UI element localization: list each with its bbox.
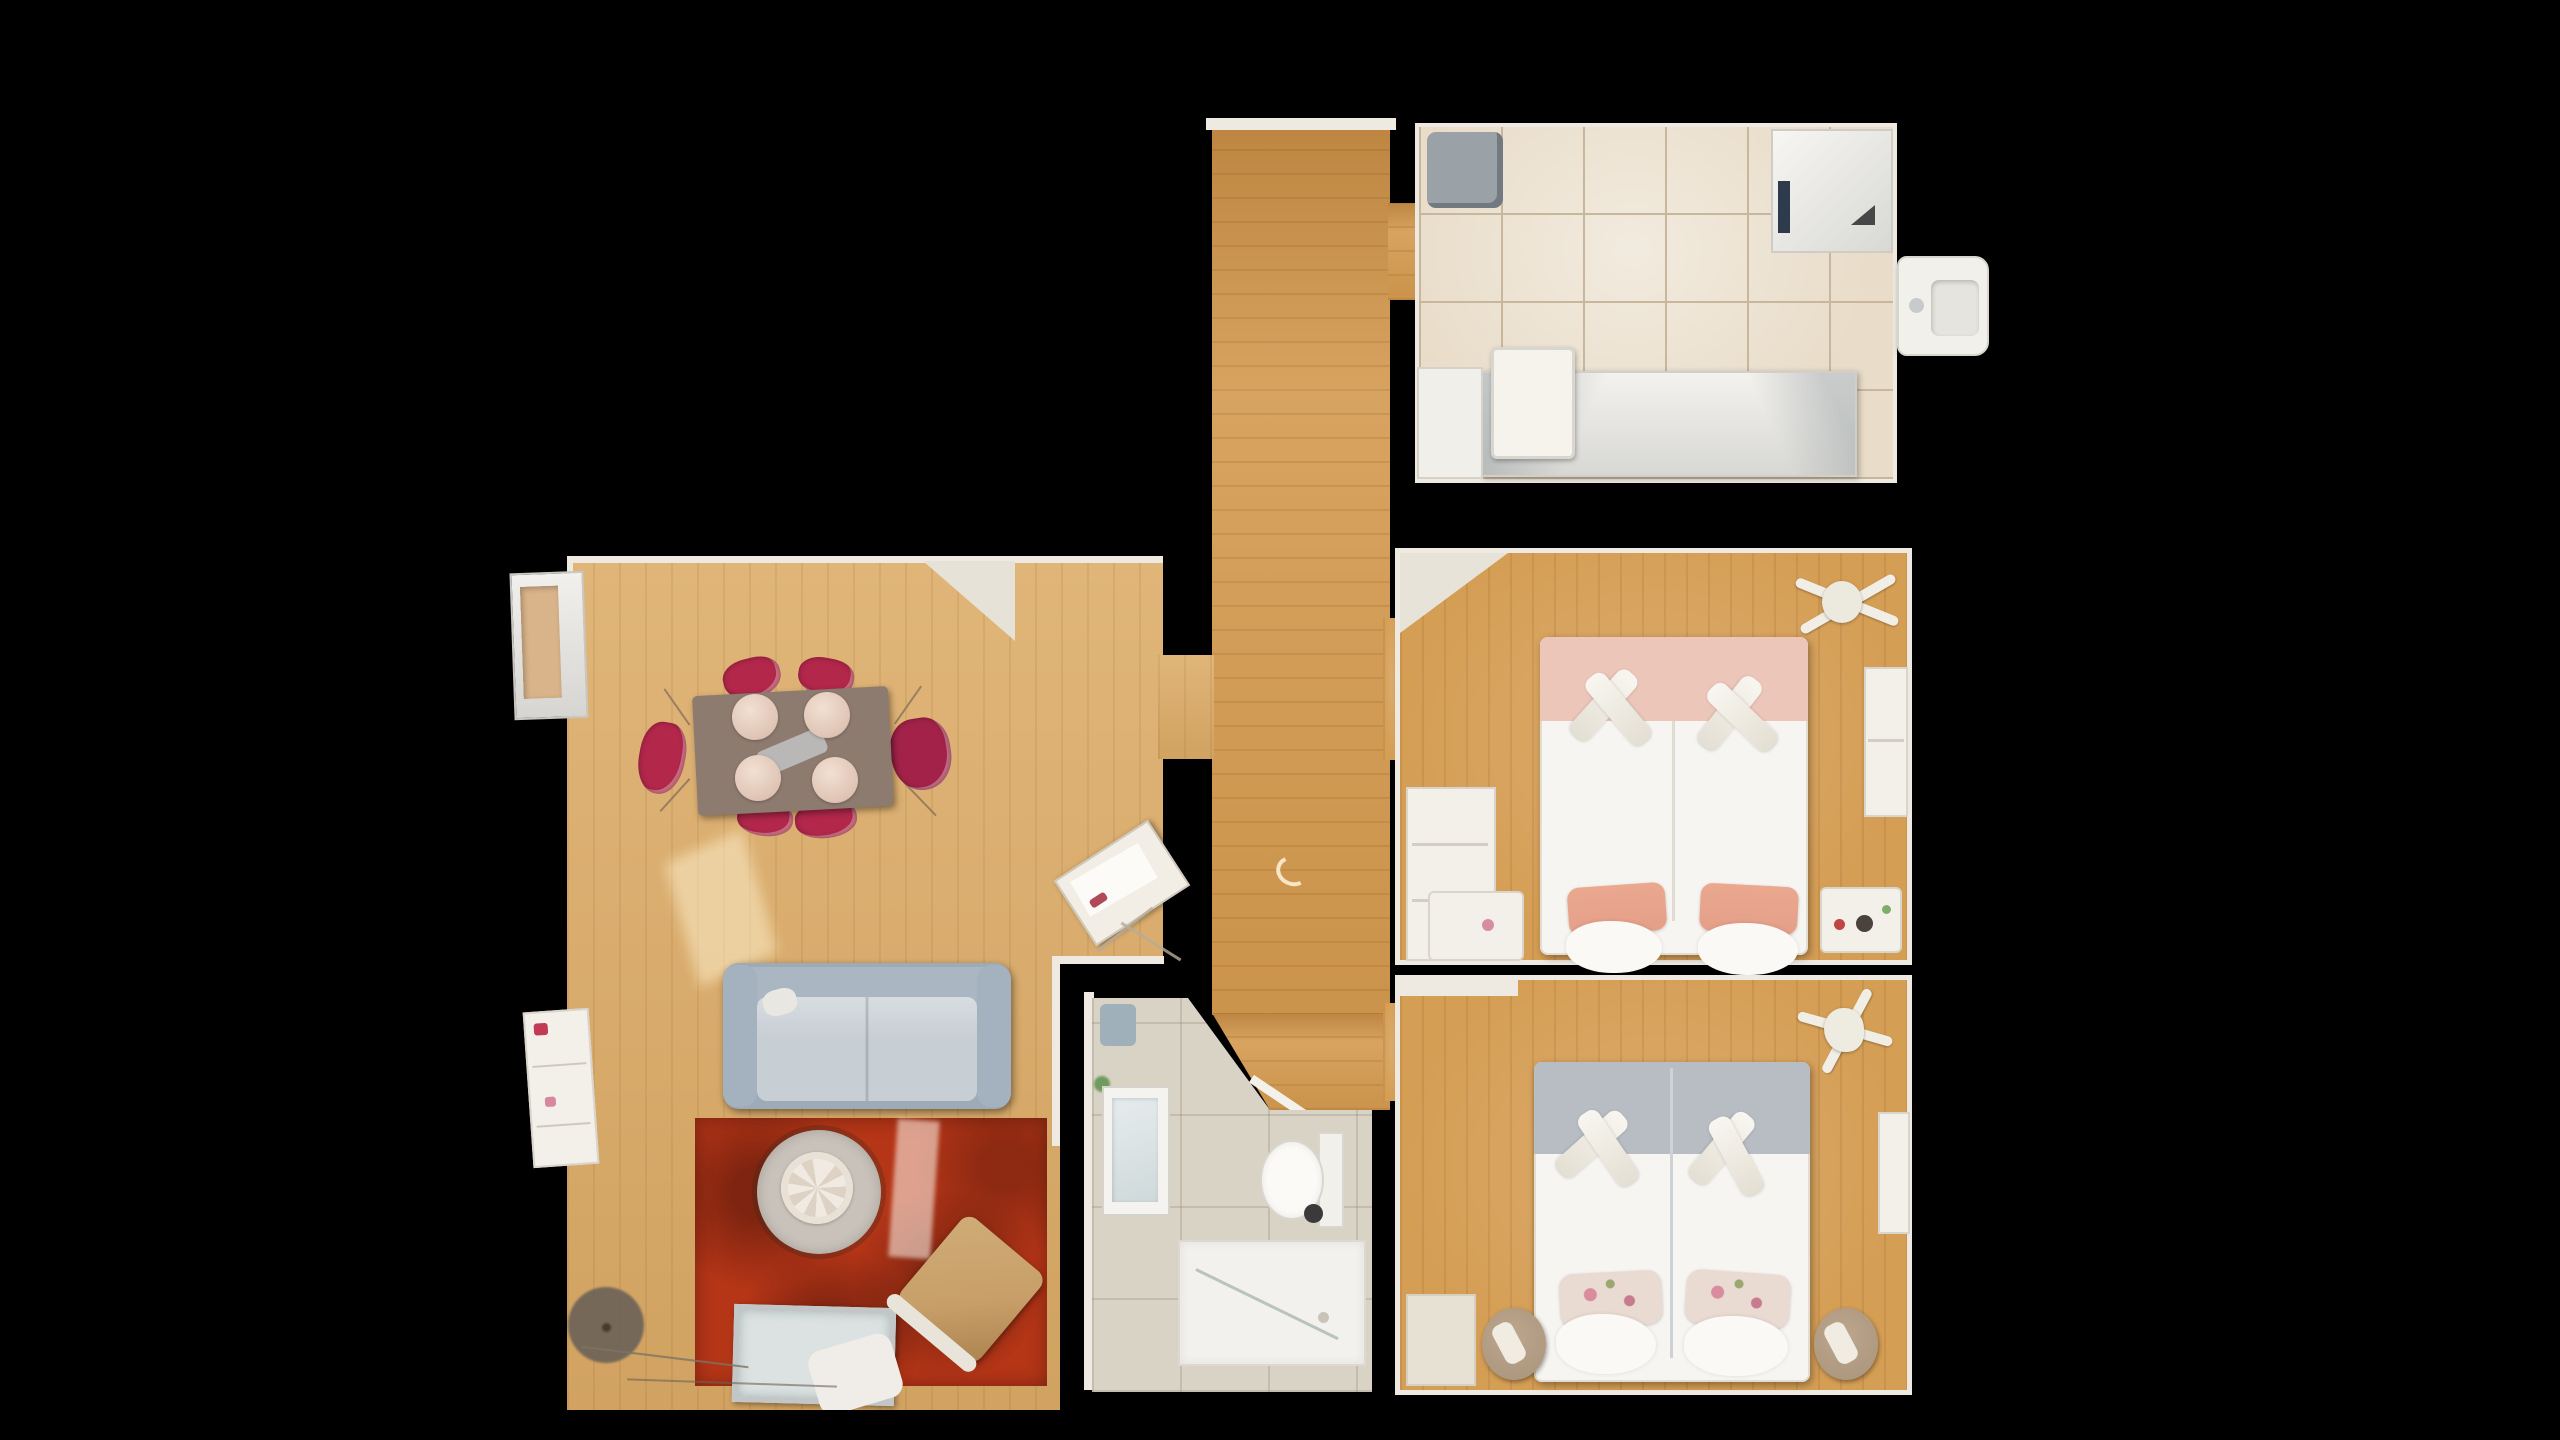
sideboard-shelf-interior <box>520 586 562 699</box>
basin <box>1931 280 1979 336</box>
low-bookshelf <box>523 1008 600 1168</box>
table-ornament <box>781 1152 853 1224</box>
sofa-arm <box>977 965 1011 1107</box>
lamp-stem <box>602 1323 611 1332</box>
item-fleck <box>1834 919 1845 930</box>
toilet <box>1260 1130 1348 1238</box>
duvet-crumple <box>1566 921 1662 973</box>
dining-table <box>692 686 894 816</box>
fan-center <box>1824 1008 1864 1052</box>
wall <box>1052 956 1060 1146</box>
toilet-shadow <box>1304 1204 1323 1223</box>
living-room-doorway[interactable] <box>1158 655 1214 759</box>
duvet-crumple <box>1684 1316 1788 1376</box>
sofa <box>723 963 1011 1109</box>
top-shelf <box>1400 978 1518 996</box>
wall <box>567 556 1163 563</box>
white-cloth <box>805 1330 906 1418</box>
room-living-room[interactable] <box>567 556 1163 1410</box>
duvet-seam <box>1672 721 1675 921</box>
shelf-line <box>1868 739 1904 742</box>
kitchen-doorway[interactable] <box>1388 203 1418 300</box>
walk-in-shower <box>1178 1240 1366 1366</box>
left-nightstand <box>1428 891 1524 961</box>
rug-light-streak <box>888 1119 940 1260</box>
chair-seat <box>735 755 781 801</box>
right-pouf <box>1814 1308 1878 1380</box>
counter-end <box>1417 367 1483 479</box>
item-fleck <box>1882 905 1891 914</box>
shelf-line <box>537 1122 591 1128</box>
pink-blanket-band <box>1540 637 1808 721</box>
floor-mat <box>1406 1294 1476 1386</box>
dining-chair <box>886 714 957 794</box>
round-coffee-table <box>757 1130 881 1254</box>
corner-wall-cut <box>1400 553 1508 633</box>
double-bed <box>1534 1062 1810 1382</box>
duvet-crumple <box>1556 1314 1656 1374</box>
rack-center <box>1822 581 1862 623</box>
drying-rack <box>1792 559 1904 651</box>
drain <box>1318 1312 1329 1323</box>
shelf-line <box>1412 843 1488 846</box>
wardrobe <box>1864 667 1908 817</box>
grey-appliance <box>1427 132 1503 208</box>
fridge-shadow <box>1851 205 1875 225</box>
room-kitchen[interactable] <box>1415 123 1897 483</box>
chair-seat <box>812 757 858 803</box>
wardrobe <box>1878 1112 1910 1234</box>
washing-machine <box>1100 1004 1136 1046</box>
island-table <box>1491 347 1575 459</box>
glass-partition <box>1195 1268 1338 1340</box>
book-fleck <box>533 1023 548 1036</box>
fridge-cabinet <box>1771 129 1893 253</box>
sofa-arm <box>723 965 757 1107</box>
pouf-towel <box>1489 1319 1528 1366</box>
fridge-slot <box>1778 181 1790 233</box>
double-bed <box>1540 637 1808 955</box>
wall <box>1206 118 1396 130</box>
floorplan-view[interactable] <box>0 0 2560 1440</box>
ceiling-fan <box>1796 990 1896 1070</box>
chair-seat <box>732 694 778 740</box>
shelf-line <box>532 1062 586 1068</box>
protruding-sink <box>1897 256 1989 356</box>
chair-seat <box>804 692 850 738</box>
sideboard <box>509 571 588 720</box>
duvet-crumple <box>1698 923 1798 975</box>
item-fleck <box>1856 915 1873 932</box>
right-nightstand <box>1820 887 1902 953</box>
pouf-towel <box>1821 1319 1860 1366</box>
mirror <box>1112 1098 1158 1202</box>
chair-leg <box>664 688 691 725</box>
wall <box>1058 956 1164 964</box>
corner-wall-cut <box>923 561 1015 641</box>
book-fleck <box>545 1096 557 1107</box>
item-fleck <box>1482 919 1494 931</box>
vanity-sink <box>1102 1086 1170 1216</box>
left-pouf <box>1482 1308 1546 1380</box>
glass-tv-table <box>732 1304 897 1406</box>
room-bedroom-one[interactable] <box>1395 548 1912 965</box>
faucet <box>1909 298 1924 313</box>
room-bedroom-two[interactable] <box>1395 975 1912 1395</box>
sofa-seat-cushions <box>757 997 977 1101</box>
duvet-seam <box>1670 1068 1673 1358</box>
